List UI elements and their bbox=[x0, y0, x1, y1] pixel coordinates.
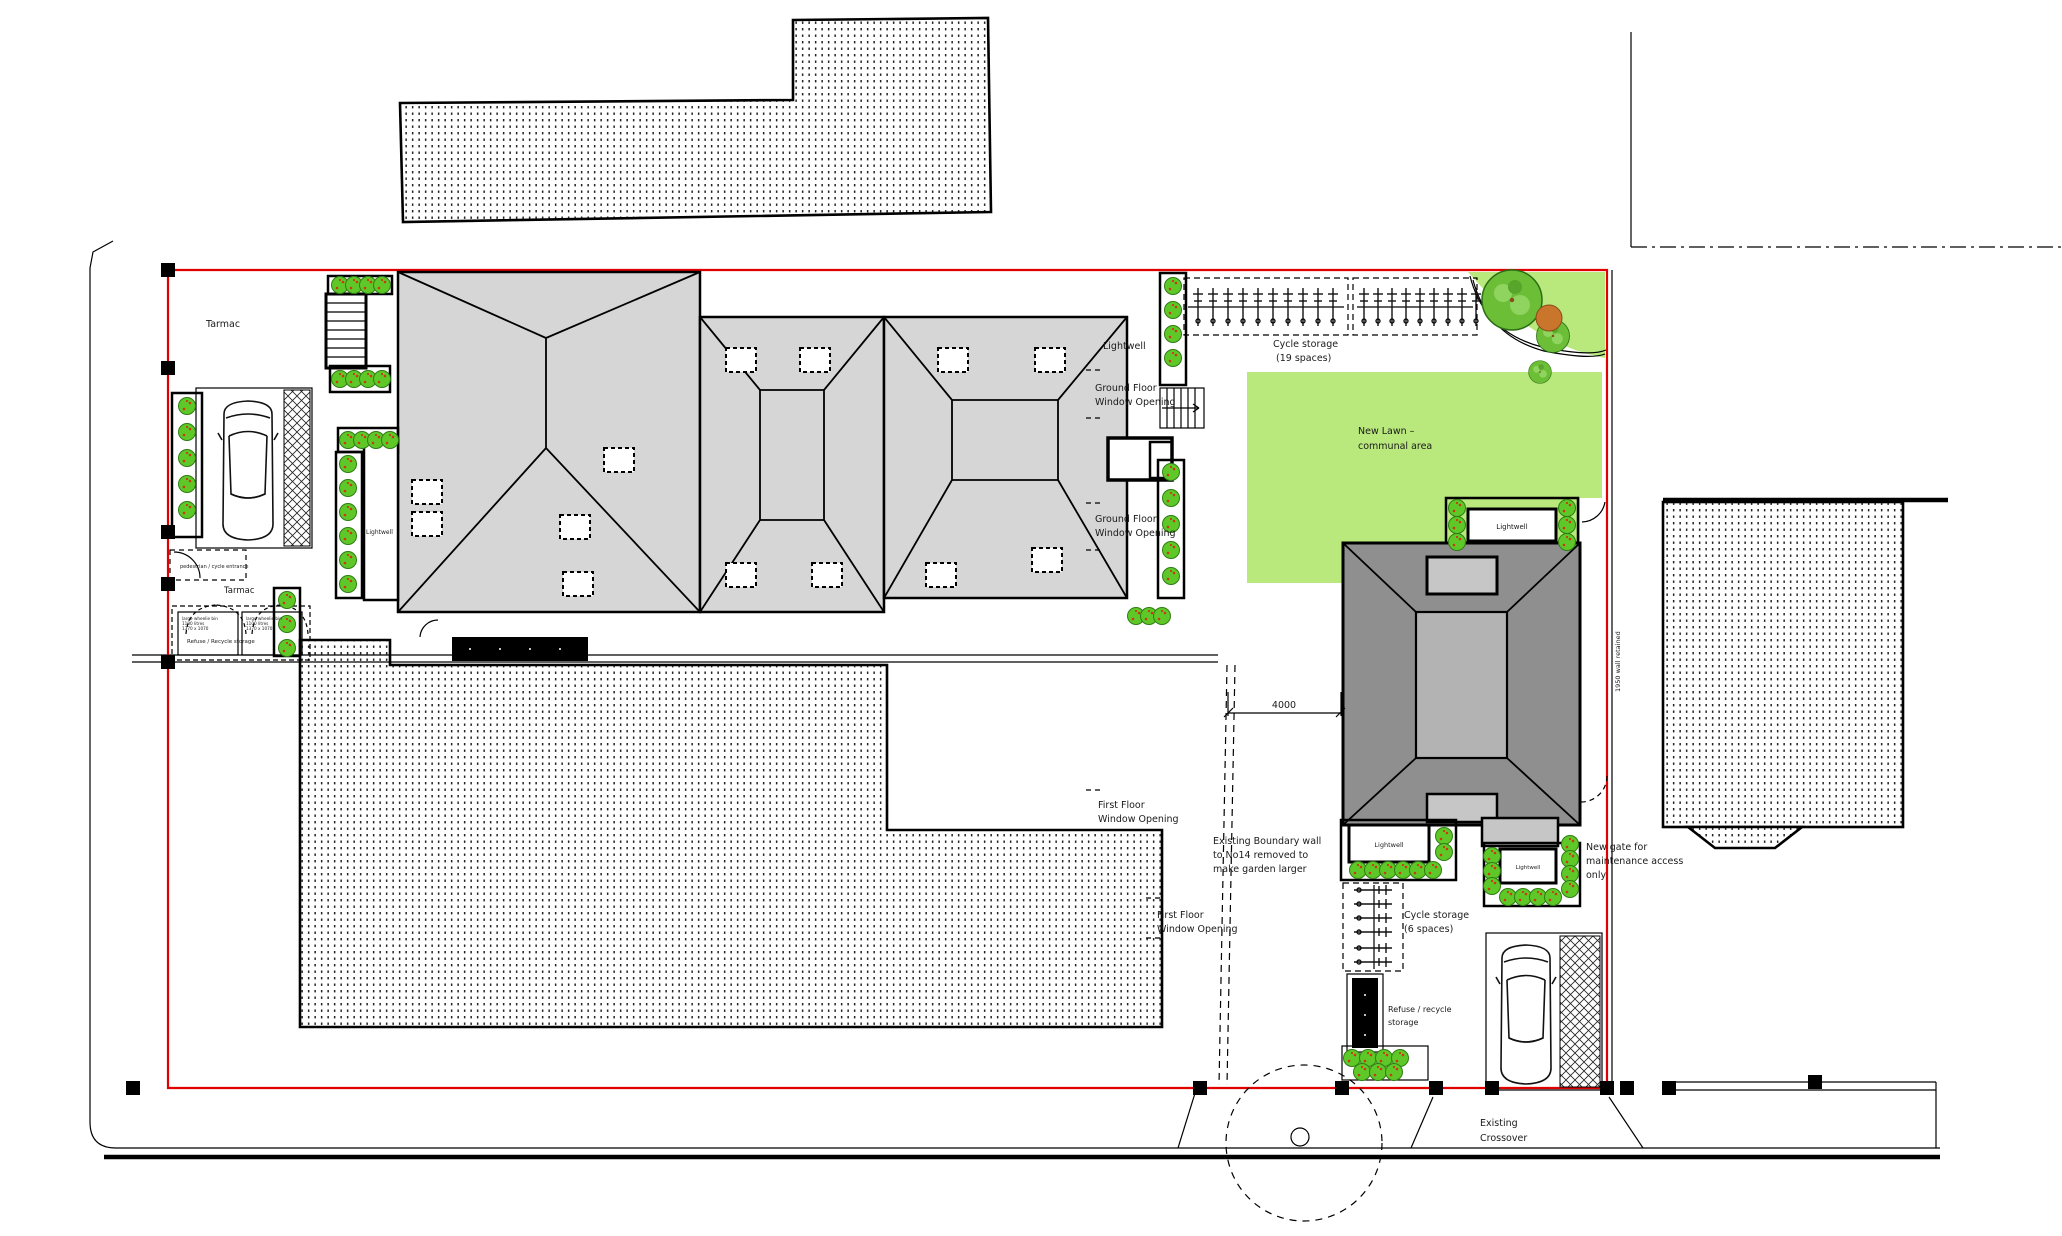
bush-icon bbox=[1354, 1064, 1371, 1081]
bush-icon bbox=[340, 576, 357, 593]
cycle-storage-6 bbox=[1343, 883, 1403, 971]
bush-icon bbox=[1165, 326, 1182, 343]
bike-symbols-horizontal bbox=[1354, 885, 1392, 967]
label-gf2-l1: Ground Floor bbox=[1095, 514, 1157, 525]
bike-icon bbox=[1354, 957, 1392, 967]
bike-icon bbox=[1354, 913, 1392, 923]
label-lightwell-left: Lightwell bbox=[366, 529, 393, 536]
label-cycle6-l1: Cycle storage bbox=[1404, 910, 1469, 921]
site-plan-drawing: Tarmac Tarmac pedestrian / cycle entranc… bbox=[0, 0, 2062, 1236]
label-cycle19-l2: (19 spaces) bbox=[1276, 353, 1331, 364]
bush-icon bbox=[1154, 608, 1171, 625]
bike-icon bbox=[1354, 943, 1392, 953]
label-crossover-l1: Existing bbox=[1480, 1118, 1518, 1129]
bush-icon bbox=[1436, 828, 1453, 845]
bush-icon bbox=[1165, 278, 1182, 295]
bike-icon bbox=[1354, 927, 1392, 937]
main-building bbox=[398, 272, 1127, 612]
label-tarmac-lower: Tarmac bbox=[223, 586, 255, 596]
label-refuse-right-l2: storage bbox=[1388, 1018, 1418, 1027]
label-tarmac-upper: Tarmac bbox=[205, 319, 240, 330]
label-bin2-l3: 1370 x 1070 bbox=[246, 626, 273, 631]
label-gf1-l1: Ground Floor bbox=[1095, 383, 1157, 394]
label-lightwell-house-top: Lightwell bbox=[1496, 523, 1527, 531]
lightwell-strip bbox=[364, 440, 398, 600]
label-gate-l3: only bbox=[1586, 870, 1606, 881]
label-gate-l1: New gate for bbox=[1586, 842, 1647, 853]
bush-icon bbox=[1370, 1064, 1387, 1081]
label-gf1-l2: Window Opening bbox=[1095, 397, 1176, 408]
bush-icon bbox=[1559, 534, 1576, 551]
bush-icon bbox=[1165, 302, 1182, 319]
label-cycle6-l2: (6 spaces) bbox=[1404, 924, 1453, 935]
gate-arc-top bbox=[1582, 502, 1605, 522]
bush-icon bbox=[1163, 464, 1180, 481]
bike-icon bbox=[1354, 899, 1392, 909]
removed-boundary-wall bbox=[1219, 665, 1235, 1085]
bush-icon bbox=[1559, 500, 1576, 517]
bush-icon bbox=[1545, 889, 1562, 906]
label-ff1-l1: First Floor bbox=[1098, 800, 1145, 811]
bush-icon bbox=[1380, 862, 1397, 879]
bush-icon bbox=[1350, 862, 1367, 879]
bush-icon bbox=[1425, 862, 1442, 879]
label-cycle19-l1: Cycle storage bbox=[1273, 339, 1338, 350]
bush-icon bbox=[340, 552, 357, 569]
bush-icon bbox=[179, 398, 196, 415]
parked-car-right bbox=[1496, 945, 1556, 1084]
neighbor-building-east bbox=[1663, 500, 1948, 848]
hatched-margin-left bbox=[284, 390, 310, 546]
bush-icon bbox=[1449, 517, 1466, 534]
bush-icon bbox=[1165, 350, 1182, 367]
label-dim-4000: 4000 bbox=[1272, 700, 1296, 711]
bush-icon bbox=[382, 432, 399, 449]
bush-icon bbox=[1344, 1050, 1361, 1067]
bush-icon bbox=[1515, 889, 1532, 906]
bush-icon bbox=[1449, 500, 1466, 517]
bush-icon bbox=[1449, 534, 1466, 551]
entrance-stairs bbox=[326, 294, 366, 368]
bush-icon bbox=[340, 528, 357, 545]
bike-icon bbox=[1354, 885, 1392, 895]
gate-arc-maintenance bbox=[1581, 776, 1607, 802]
bush-icon bbox=[1410, 862, 1427, 879]
hatched-margin-right bbox=[1560, 936, 1600, 1087]
label-boundary-l1: Existing Boundary wall bbox=[1213, 836, 1321, 847]
bush-icon bbox=[374, 371, 391, 388]
bush-icon bbox=[179, 450, 196, 467]
label-wall-retained: 1950 wall retained bbox=[1614, 631, 1622, 692]
label-ff1-l2: Window Opening bbox=[1098, 814, 1179, 825]
label-lawn-l2: communal area bbox=[1358, 441, 1432, 452]
bush-icon bbox=[1530, 889, 1547, 906]
bush-icon bbox=[1163, 568, 1180, 585]
bush-icon bbox=[1395, 862, 1412, 879]
bush-icon bbox=[374, 277, 391, 294]
bush-icon bbox=[1562, 866, 1579, 883]
bush-icon bbox=[279, 592, 296, 609]
bush-icon bbox=[1500, 889, 1517, 906]
bush-icon bbox=[1163, 490, 1180, 507]
label-gf2-l2: Window Opening bbox=[1095, 528, 1176, 539]
label-lightwell-house-br: Lightwell bbox=[1516, 865, 1541, 871]
neighbor-building-north bbox=[400, 18, 991, 222]
label-refuse-front: Refuse / Recycle storage bbox=[187, 639, 255, 645]
label-lightwell-top: Lightwell bbox=[1103, 341, 1146, 352]
bush-icon bbox=[1562, 851, 1579, 868]
bush-icon bbox=[340, 456, 357, 473]
bush-icon bbox=[279, 640, 296, 657]
autumn-tree bbox=[1536, 305, 1562, 331]
cycle-storage-19 bbox=[1184, 278, 1481, 335]
label-ff2-l2: Window Opening bbox=[1157, 924, 1238, 935]
site-plan-sheet: Tarmac Tarmac pedestrian / cycle entranc… bbox=[0, 0, 2062, 1236]
bush-icon bbox=[179, 424, 196, 441]
label-boundary-l3: make garden larger bbox=[1213, 864, 1307, 875]
label-ff2-l1: First Floor bbox=[1157, 910, 1204, 921]
bush-icon bbox=[1484, 878, 1501, 895]
bush-icon bbox=[1436, 844, 1453, 861]
label-bin1-l3: 1370 x 1070 bbox=[182, 626, 209, 631]
label-boundary-l2: to No14 removed to bbox=[1213, 850, 1308, 861]
bush-icon bbox=[1559, 517, 1576, 534]
bush-icon bbox=[1562, 881, 1579, 898]
bush-icon bbox=[1163, 542, 1180, 559]
bush-icon bbox=[340, 504, 357, 521]
label-crossover-l2: Crossover bbox=[1480, 1133, 1527, 1144]
bush-icon bbox=[179, 502, 196, 519]
bush-icon bbox=[1484, 863, 1501, 880]
bush-icon bbox=[1386, 1064, 1403, 1081]
bin-store-strip bbox=[452, 637, 588, 661]
existing-building-south bbox=[300, 640, 1162, 1027]
bush-icon bbox=[340, 480, 357, 497]
label-lawn-l1: New Lawn – bbox=[1358, 426, 1415, 437]
label-pedestrian-entrance: pedestrian / cycle entrance bbox=[180, 564, 248, 570]
parked-car-left bbox=[218, 401, 278, 540]
bush-icon bbox=[1562, 836, 1579, 853]
bush-icon bbox=[1484, 848, 1501, 865]
street-tree-trunk bbox=[1291, 1128, 1309, 1146]
east-stairs bbox=[1160, 388, 1204, 428]
label-lightwell-house-bl: Lightwell bbox=[1374, 841, 1403, 849]
bush-icon bbox=[1365, 862, 1382, 879]
bush-icon bbox=[179, 476, 196, 493]
label-gate-l2: maintenance access bbox=[1586, 856, 1683, 867]
right-parking bbox=[1486, 933, 1602, 1090]
label-refuse-right-l1: Refuse / recycle bbox=[1388, 1005, 1452, 1014]
